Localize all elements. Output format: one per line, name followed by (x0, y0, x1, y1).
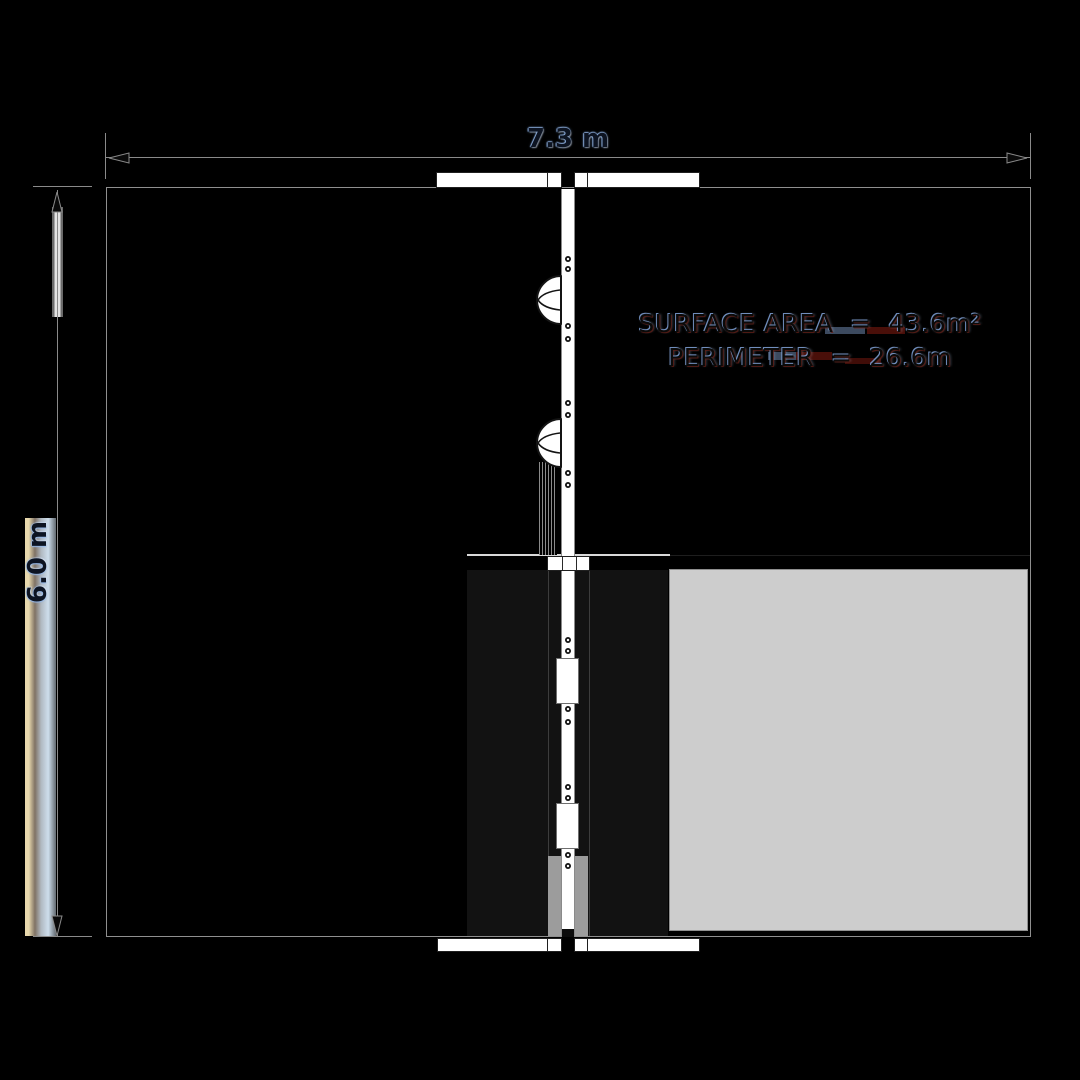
hinge-dot (565, 863, 571, 869)
hinge-dot (565, 706, 571, 712)
extension-line (1030, 133, 1031, 179)
junction-divider (562, 557, 563, 570)
floor-plan-canvas: 7.3 m 6.0 m SURFACE AREA = 43.6m² PERIME… (0, 0, 1080, 1080)
hinge-dot (565, 470, 571, 476)
hinge-dot (565, 323, 571, 329)
door-jamb (548, 856, 561, 936)
hatch-stripes (539, 462, 557, 555)
arrow-up-icon (51, 191, 63, 213)
junction-divider (576, 557, 577, 570)
window-segment (574, 938, 588, 952)
hinge-dot (565, 256, 571, 262)
window-segment (587, 172, 700, 188)
hinge-dot (565, 482, 571, 488)
extension-line (105, 133, 106, 179)
perimeter-label: PERIMETER = 26.6m (600, 343, 1020, 372)
dimension-line-horizontal (106, 157, 1030, 158)
hinge-dot (565, 648, 571, 654)
dimension-line-vertical (57, 190, 58, 936)
door-jamb (575, 856, 588, 936)
arrow-right-icon (1006, 152, 1028, 164)
wall-cap (562, 929, 574, 937)
arrow-down-icon (51, 915, 63, 937)
hinge-dot (565, 336, 571, 342)
arrow-left-icon (108, 152, 130, 164)
window-segment (437, 938, 548, 952)
hinge-dot (565, 400, 571, 406)
surface-area-label: SURFACE AREA = 43.6m² (600, 309, 1020, 338)
hinge-dot (565, 412, 571, 418)
window-segment (574, 172, 588, 188)
hinge-dot (565, 784, 571, 790)
window-segment (587, 938, 700, 952)
window-segment (436, 172, 548, 188)
window-segment (547, 938, 562, 952)
hinge-dot (565, 637, 571, 643)
door-panel (556, 658, 579, 704)
door-swing-icon (533, 417, 563, 469)
horizontal-dimension-label: 7.3 m (468, 124, 668, 154)
vertical-dimension-label: 6.0 m (23, 492, 49, 632)
hinge-dot (565, 266, 571, 272)
hinge-dot (565, 852, 571, 858)
door-panel (556, 803, 579, 849)
extension-line (33, 186, 92, 187)
window-segment (547, 172, 562, 188)
door-swing-icon (533, 274, 563, 326)
wall-junction-block (547, 556, 590, 571)
hinge-dot (565, 795, 571, 801)
hinge-dot (565, 719, 571, 725)
